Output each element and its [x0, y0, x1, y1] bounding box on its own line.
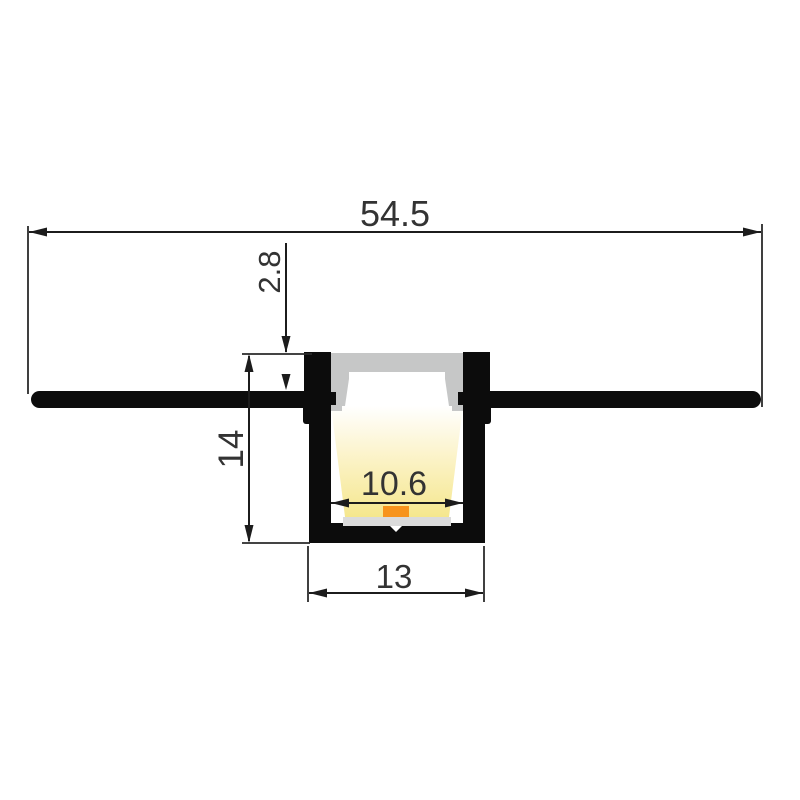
dim-label-base-width: 13: [376, 558, 413, 595]
arrow-down-icon: [282, 374, 291, 390]
dim-label-overall-width: 54.5: [360, 193, 430, 234]
drawing-canvas: 54.5 2.8 14 10.6 13: [0, 0, 800, 800]
arrow-left-icon: [309, 589, 327, 598]
dim-label-inner-width: 10.6: [361, 465, 427, 503]
arrow-left-icon: [331, 499, 349, 508]
right-inner-nub: [458, 392, 463, 405]
frosted-diffuser: [322, 353, 472, 408]
pcb-strip: [343, 517, 451, 526]
profile-cross-section-drawing: 54.5 2.8 14 10.6 13: [0, 0, 800, 800]
led-chip: [383, 506, 409, 517]
dim-label-height: 14: [212, 430, 251, 469]
arrow-left-icon: [29, 228, 47, 237]
left-mounting-wing: [31, 391, 311, 408]
diffuser-inner-cavity: [349, 372, 445, 408]
dimension-recess-depth: 2.8: [242, 243, 312, 390]
left-top-cap: [304, 352, 331, 392]
dimension-base-width: 13: [308, 546, 484, 602]
arrow-down-icon: [282, 336, 291, 353]
diffuser-top-bar: [322, 353, 472, 372]
arrow-right-icon: [465, 589, 483, 598]
right-mounting-wing: [483, 391, 761, 408]
arrow-up-icon: [245, 354, 254, 372]
dim-label-recess-depth: 2.8: [252, 250, 287, 293]
arrow-right-icon: [743, 228, 761, 237]
left-inner-nub: [331, 392, 336, 405]
arrow-down-icon: [245, 525, 254, 543]
arrow-right-icon: [445, 499, 463, 508]
dimension-height: 14: [212, 354, 310, 543]
right-top-cap: [463, 352, 490, 392]
